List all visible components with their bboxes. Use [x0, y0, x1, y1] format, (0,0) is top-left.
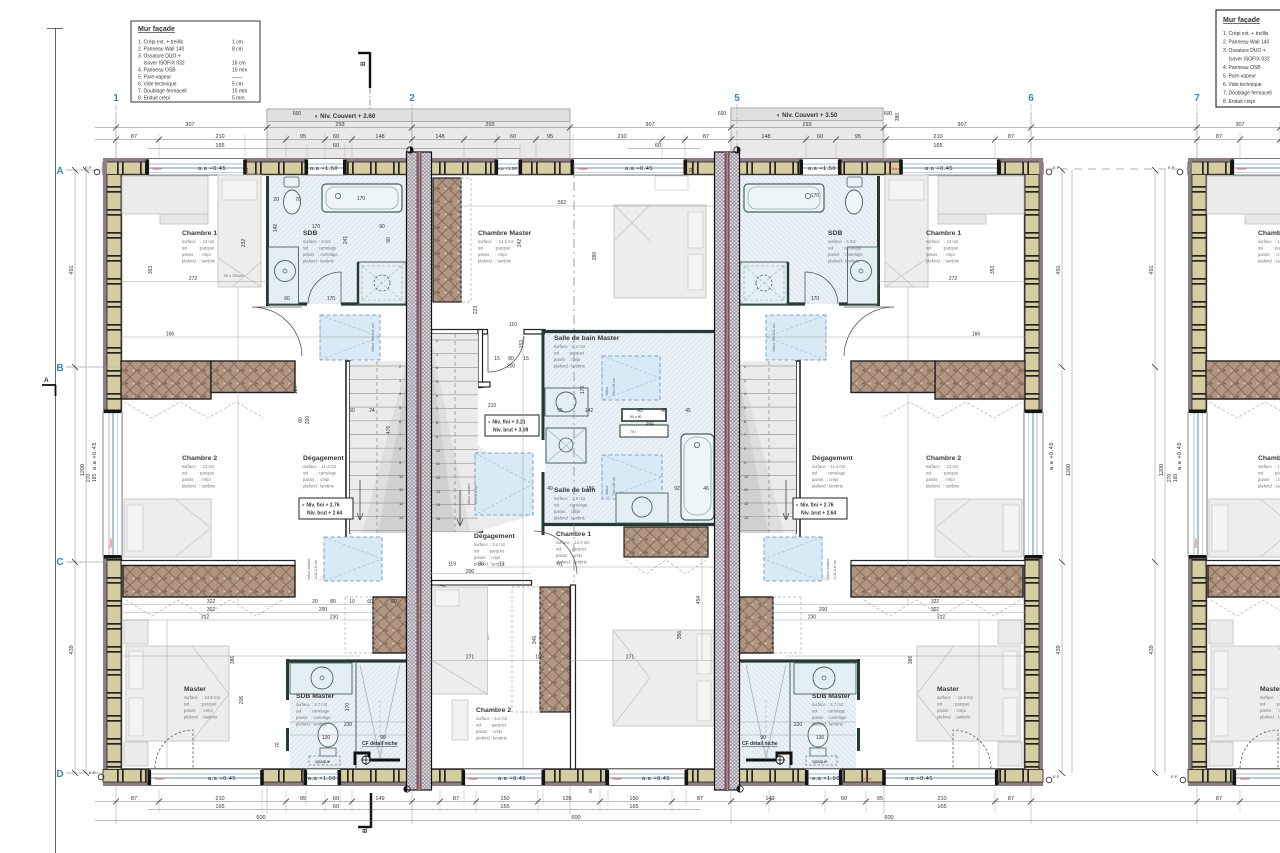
svg-text:454: 454 — [696, 596, 702, 605]
svg-text:130: 130 — [322, 735, 331, 741]
svg-text:220: 220 — [794, 722, 803, 728]
svg-text:a.a +0.45: a.a +0.45 — [1049, 442, 1055, 470]
svg-text:130: 130 — [816, 735, 825, 741]
svg-text:sol : carrelage: sol : carrelage — [812, 471, 846, 476]
svg-text:148: 148 — [435, 134, 444, 140]
svg-text:1 cm: 1 cm — [232, 40, 243, 46]
svg-text:6. Vide technique: 6. Vide technique — [1223, 82, 1262, 88]
svg-text:15 mm: 15 mm — [232, 89, 247, 95]
svg-text:165: 165 — [215, 143, 224, 149]
svg-text:surface : 14.8 m2: surface : 14.8 m2 — [184, 695, 221, 700]
svg-text:Chambre 2: Chambre 2 — [1258, 455, 1280, 462]
svg-text:230: 230 — [330, 615, 339, 621]
svg-text:2: 2 — [436, 339, 438, 343]
svg-text:9: 9 — [744, 461, 746, 465]
svg-text:49: 49 — [547, 486, 553, 492]
svg-text:sol : parquet: sol : parquet — [937, 702, 970, 707]
svg-text:Velux 78x118 cm: Velux 78x118 cm — [371, 323, 375, 352]
svg-text:34: 34 — [588, 788, 593, 794]
svg-text:210: 210 — [933, 134, 942, 140]
svg-text:439: 439 — [1149, 645, 1155, 654]
svg-text:302: 302 — [207, 607, 216, 613]
svg-text:CF détail niche: CF détail niche — [362, 741, 398, 747]
svg-text:476: 476 — [386, 426, 392, 435]
svg-text:165: 165 — [629, 804, 638, 810]
svg-text:150: 150 — [629, 796, 638, 802]
svg-text:95: 95 — [877, 796, 883, 802]
svg-text:sol : carrelage: sol : carrelage — [303, 471, 337, 476]
svg-text:1. Crépi ext. + treillis: 1. Crépi ext. + treillis — [1223, 31, 1269, 37]
svg-text:Salle de bain Master: Salle de bain Master — [554, 335, 620, 342]
svg-text:Dégagement: Dégagement — [812, 455, 854, 462]
svg-text:plafond : lambris: plafond : lambris — [554, 364, 585, 369]
svg-text:142: 142 — [585, 408, 594, 414]
svg-text:386: 386 — [908, 656, 914, 665]
svg-text:surface : 14.8 m2: surface : 14.8 m2 — [937, 695, 974, 700]
svg-text:380: 380 — [895, 113, 901, 122]
svg-text:271: 271 — [626, 655, 635, 661]
svg-text:sol : pa: sol : pa — [1258, 471, 1280, 476]
svg-text:95: 95 — [300, 796, 306, 802]
svg-text:Chambre 2: Chambre 2 — [182, 455, 217, 462]
svg-text:Velux solaire: Velux solaire — [467, 483, 471, 505]
svg-text:20: 20 — [273, 197, 279, 203]
svg-text:5. Pare-vapeur: 5. Pare-vapeur — [138, 75, 171, 81]
svg-text:76: 76 — [275, 742, 281, 748]
svg-text:7: 7 — [436, 407, 438, 411]
svg-text:plafond : la: plafond : la — [1258, 259, 1280, 264]
svg-text:sol : parquet: sol : parquet — [556, 547, 587, 552]
svg-text:60: 60 — [817, 134, 823, 140]
svg-text:parois : crépi: parois : crépi — [926, 252, 955, 257]
svg-text:95: 95 — [547, 134, 553, 140]
svg-text:95: 95 — [855, 134, 861, 140]
svg-text:parois : cr: parois : cr — [1260, 708, 1280, 713]
svg-text:87: 87 — [1008, 134, 1014, 140]
svg-text:a.a +0.45: a.a +0.45 — [498, 776, 526, 782]
svg-text:3. Ossature DUO +: 3. Ossature DUO + — [138, 54, 181, 60]
svg-text:B: B — [360, 61, 367, 66]
svg-text:16 cm: 16 cm — [232, 61, 246, 67]
svg-text:10: 10 — [399, 475, 403, 479]
svg-text:Isover ISOFIX 032: Isover ISOFIX 032 — [138, 61, 185, 67]
svg-text:C: C — [56, 557, 63, 568]
svg-text:2. Panneau Wall 140: 2. Panneau Wall 140 — [138, 47, 184, 53]
svg-text:90 x 200cm: 90 x 200cm — [224, 274, 244, 278]
svg-text:120: 120 — [293, 386, 299, 395]
svg-text:Dégagement: Dégagement — [303, 455, 345, 462]
svg-text:95: 95 — [300, 134, 306, 140]
svg-text:E.P: E.P — [1053, 774, 1060, 779]
svg-text:14: 14 — [436, 503, 440, 507]
svg-text:10: 10 — [535, 655, 541, 661]
svg-text:322: 322 — [207, 599, 216, 605]
svg-text:60: 60 — [510, 134, 516, 140]
svg-text:220: 220 — [344, 722, 353, 728]
svg-text:2: 2 — [744, 365, 746, 369]
svg-text:491: 491 — [1149, 265, 1155, 274]
svg-text:surface : 6 m2: surface : 6 m2 — [828, 239, 856, 244]
svg-text:opaque: opaque — [812, 759, 828, 764]
svg-text:a.a +0.45: a.a +0.45 — [625, 166, 653, 172]
svg-text:149: 149 — [375, 796, 384, 802]
svg-text:Chambre 2: Chambre 2 — [926, 455, 961, 462]
svg-text:5 mm: 5 mm — [232, 96, 245, 102]
svg-text:87: 87 — [1008, 796, 1014, 802]
svg-text:114x118 cm: 114x118 cm — [833, 560, 837, 580]
svg-text:293: 293 — [335, 122, 344, 128]
svg-text:10: 10 — [744, 475, 748, 479]
svg-text:307: 307 — [185, 122, 194, 128]
svg-text:Chambre Master: Chambre Master — [478, 230, 532, 237]
svg-text:60: 60 — [333, 134, 339, 140]
svg-text:114x118 cm: 114x118 cm — [314, 560, 318, 580]
svg-text:230: 230 — [808, 615, 817, 621]
svg-text:166: 166 — [166, 332, 175, 338]
svg-text:90: 90 — [760, 735, 766, 741]
svg-text:surface : 13: surface : 13 — [1258, 464, 1280, 469]
svg-text:sol : carrelage: sol : carrelage — [296, 709, 330, 714]
svg-text:sol : parquet: sol : parquet — [474, 549, 505, 554]
svg-text:6: 6 — [436, 394, 438, 398]
svg-text:272: 272 — [949, 276, 958, 282]
svg-text:Store: Store — [890, 166, 900, 171]
svg-text:surface : 13: surface : 13 — [1258, 239, 1280, 244]
svg-text:170: 170 — [811, 296, 820, 302]
svg-text:200: 200 — [507, 364, 516, 370]
svg-text:Store: Store — [578, 166, 588, 171]
svg-text:Isover ISOFIX 032: Isover ISOFIX 032 — [1223, 57, 1270, 63]
svg-text:1: 1 — [113, 93, 119, 104]
svg-text:parois : crépi: parois : crépi — [474, 555, 500, 560]
svg-text:200: 200 — [466, 569, 475, 575]
svg-text:surface : 3.4 m2: surface : 3.4 m2 — [474, 542, 506, 547]
svg-text:15: 15 — [523, 356, 529, 362]
svg-text:353: 353 — [990, 266, 996, 275]
svg-text:15 mm: 15 mm — [232, 68, 247, 74]
svg-text:sol : parquet: sol : parquet — [926, 471, 959, 476]
svg-text:7: 7 — [744, 433, 746, 437]
svg-text:4. Panneau OSB: 4. Panneau OSB — [138, 68, 176, 74]
svg-text:E.P: E.P — [1171, 774, 1178, 779]
svg-text:92: 92 — [674, 486, 680, 492]
svg-text:surface : 14.3 m2: surface : 14.3 m2 — [478, 239, 515, 244]
svg-text:153: 153 — [519, 340, 525, 349]
svg-text:plafond : lambris: plafond : lambris — [937, 715, 970, 720]
svg-text:302: 302 — [931, 607, 940, 613]
svg-text:parois : crépi: parois : crépi — [937, 708, 966, 713]
svg-text:parois : crépi: parois : crépi — [303, 477, 329, 482]
svg-text:600: 600 — [293, 111, 302, 117]
svg-text:87: 87 — [131, 796, 137, 802]
svg-text:206: 206 — [239, 696, 245, 705]
svg-text:11: 11 — [399, 488, 403, 492]
svg-text:D: D — [56, 769, 63, 780]
svg-text:7: 7 — [1194, 93, 1200, 104]
svg-text:322: 322 — [931, 599, 940, 605]
svg-text:◐ Niv. Couvert + 2.60: ◐ Niv. Couvert + 2.60 — [315, 113, 376, 120]
svg-text:E.P: E.P — [89, 770, 96, 775]
svg-text:sol : parquet: sol : parquet — [182, 246, 215, 251]
svg-text:166: 166 — [972, 332, 981, 338]
svg-text:surface : 13 m2: surface : 13 m2 — [182, 239, 215, 244]
svg-text:plafond : lambris: plafond : lambris — [296, 722, 327, 727]
svg-text:491: 491 — [69, 265, 75, 274]
svg-text:sol : parquet: sol : parquet — [476, 723, 507, 728]
svg-text:3: 3 — [436, 353, 438, 357]
svg-text:6: 6 — [744, 420, 746, 424]
svg-text:55: 55 — [557, 408, 563, 414]
svg-text:600: 600 — [718, 111, 727, 117]
svg-text:60: 60 — [333, 804, 339, 810]
svg-text:60: 60 — [284, 296, 290, 302]
svg-text:346: 346 — [532, 636, 538, 645]
svg-text:a.a +0.45: a.a +0.45 — [925, 166, 953, 172]
svg-text:surface : 6 m2: surface : 6 m2 — [303, 239, 331, 244]
svg-text:a.a +0.45: a.a +0.45 — [92, 442, 98, 470]
svg-text:34: 34 — [244, 167, 249, 173]
svg-text:210: 210 — [215, 134, 224, 140]
svg-text:332: 332 — [646, 421, 655, 427]
svg-text:1200: 1200 — [1159, 464, 1165, 476]
svg-text:61: 61 — [557, 562, 563, 568]
svg-text:12: 12 — [399, 502, 403, 506]
svg-text:Chambre 1: Chambre 1 — [926, 230, 961, 237]
svg-text:parois : carrelage: parois : carrelage — [296, 715, 331, 720]
svg-text:114x118 cm: 114x118 cm — [474, 485, 478, 505]
svg-text:Master: Master — [1260, 686, 1280, 693]
svg-text:34: 34 — [688, 167, 693, 173]
svg-text:10: 10 — [436, 449, 440, 453]
svg-text:60: 60 — [367, 599, 373, 605]
svg-text:Velux: Velux — [605, 486, 609, 495]
svg-text:4. Panneau OSB: 4. Panneau OSB — [1223, 65, 1261, 71]
svg-text:12: 12 — [744, 502, 748, 506]
svg-text:170: 170 — [357, 196, 366, 202]
svg-text:8: 8 — [744, 447, 746, 451]
svg-text:sol : carrelage: sol : carrelage — [554, 503, 588, 508]
svg-text:90: 90 — [386, 237, 392, 243]
svg-text:200: 200 — [319, 607, 328, 613]
svg-text:plafond : lambris: plafond : lambris — [554, 516, 585, 521]
svg-text:87: 87 — [1216, 796, 1222, 802]
svg-text:sol : parquet: sol : parquet — [926, 246, 959, 251]
svg-text:Mur façade: Mur façade — [138, 26, 175, 33]
svg-text:——: —— — [232, 75, 242, 81]
svg-text:165: 165 — [215, 804, 224, 810]
svg-text:126: 126 — [562, 796, 571, 802]
svg-text:sol : carrelage: sol : carrelage — [828, 246, 862, 251]
svg-text:Store: Store — [468, 776, 478, 781]
svg-text:Master: Master — [184, 686, 206, 693]
svg-text:◐ Niv. fini + 3.21: ◐ Niv. fini + 3.21 — [488, 420, 526, 426]
svg-text:opaque: opaque — [315, 759, 331, 764]
svg-text:Store: Store — [155, 776, 165, 781]
svg-text:Velux: Velux — [605, 387, 609, 396]
svg-text:surface : 9.2 m2: surface : 9.2 m2 — [476, 716, 508, 721]
svg-text:165: 165 — [933, 143, 942, 149]
svg-text:307: 307 — [1235, 122, 1244, 128]
svg-text:◐ Niv. fini + 2.76: ◐ Niv. fini + 2.76 — [302, 503, 340, 509]
svg-text:a.a +1.50: a.a +1.50 — [812, 776, 840, 782]
svg-text:50: 50 — [349, 408, 355, 414]
svg-text:surface : 11.4 m2: surface : 11.4 m2 — [303, 464, 337, 469]
svg-text:293: 293 — [802, 122, 811, 128]
svg-text:12: 12 — [436, 476, 440, 480]
svg-text:78x118 cm: 78x118 cm — [612, 477, 616, 495]
svg-text:45: 45 — [685, 408, 691, 414]
svg-text:223: 223 — [473, 306, 479, 315]
svg-text:a.a +1.50: a.a +1.50 — [808, 166, 836, 172]
svg-text:a.a +1.50: a.a +1.50 — [497, 166, 517, 172]
svg-text:87: 87 — [1216, 134, 1222, 140]
svg-text:Mur façade: Mur façade — [1223, 17, 1260, 24]
svg-text:87: 87 — [697, 796, 703, 802]
svg-text:plafond : lambris: plafond : lambris — [184, 715, 217, 720]
svg-text:surface : 12.9 m2: surface : 12.9 m2 — [556, 540, 590, 545]
svg-text:plafond : lambris: plafond : lambris — [303, 484, 334, 489]
svg-text:491: 491 — [1056, 265, 1062, 274]
svg-text:75 l: 75 l — [630, 430, 636, 434]
svg-text:parois : crépi: parois : crépi — [478, 252, 507, 257]
svg-text:parois : crépi: parois : crépi — [182, 477, 211, 482]
svg-text:15: 15 — [436, 517, 440, 521]
svg-text:11: 11 — [436, 462, 440, 466]
svg-text:8 cm: 8 cm — [232, 47, 243, 53]
svg-text:A: A — [56, 166, 63, 177]
svg-text:E.P: E.P — [85, 165, 92, 170]
svg-text:80: 80 — [298, 417, 304, 423]
svg-text:surface : 5.4 m2: surface : 5.4 m2 — [554, 344, 586, 349]
svg-text:165: 165 — [92, 474, 98, 483]
svg-text:148: 148 — [375, 134, 384, 140]
svg-text:sol : parquet: sol : parquet — [478, 246, 511, 251]
svg-text:552: 552 — [558, 200, 567, 206]
svg-text:a.a +1.50: a.a +1.50 — [310, 166, 338, 172]
svg-text:6: 6 — [1028, 93, 1034, 104]
svg-text:200: 200 — [305, 416, 311, 425]
svg-text:7: 7 — [399, 433, 401, 437]
svg-text:plafond : lambris: plafond : lambris — [303, 259, 334, 264]
svg-text:3: 3 — [744, 379, 746, 383]
svg-text:8. Enduit crépi: 8. Enduit crépi — [138, 96, 170, 102]
svg-text:353: 353 — [148, 266, 154, 275]
svg-text:1200: 1200 — [1066, 464, 1072, 476]
svg-text:142: 142 — [273, 224, 279, 233]
svg-text:20: 20 — [312, 599, 318, 605]
svg-text:parois : crépi: parois : crépi — [926, 477, 955, 482]
svg-text:356: 356 — [677, 631, 683, 640]
svg-text:15: 15 — [494, 356, 500, 362]
svg-text:parois : cr: parois : cr — [1258, 477, 1280, 482]
svg-text:7. Doublage fermacell: 7. Doublage fermacell — [138, 89, 187, 95]
svg-text:80: 80 — [508, 356, 514, 362]
svg-text:a.a +1.50: a.a +1.50 — [308, 776, 336, 782]
svg-text:5: 5 — [744, 406, 746, 410]
svg-text:B: B — [362, 828, 369, 833]
svg-text:13: 13 — [436, 490, 440, 494]
svg-text:46: 46 — [703, 486, 709, 492]
svg-text:parois : crépi: parois : crépi — [554, 509, 580, 514]
svg-text:a.a +0.45: a.a +0.45 — [642, 776, 670, 782]
svg-text:sol : parquet: sol : parquet — [182, 471, 215, 476]
svg-text:parois : carrelage: parois : carrelage — [812, 715, 847, 720]
svg-text:78x118 cm: 78x118 cm — [612, 378, 616, 396]
svg-text:5: 5 — [399, 406, 401, 410]
svg-text:plafond : lambris: plafond : lambris — [476, 736, 507, 741]
svg-text:45: 45 — [661, 408, 667, 414]
svg-text:parois : crépi: parois : crépi — [476, 729, 502, 734]
svg-text:242: 242 — [517, 239, 523, 248]
svg-text:surface : 13 m2: surface : 13 m2 — [926, 239, 959, 244]
svg-text:600: 600 — [256, 815, 265, 821]
svg-text:600: 600 — [571, 815, 580, 821]
svg-text:SDB: SDB — [303, 230, 317, 237]
svg-text:plafond : lambris: plafond : lambris — [926, 259, 959, 264]
svg-text:a.a +0.45: a.a +0.45 — [198, 166, 226, 172]
svg-text:386: 386 — [230, 656, 236, 665]
svg-text:Chambre 2: Chambre 2 — [476, 707, 511, 714]
svg-text:a.a +0.45: a.a +0.45 — [905, 776, 933, 782]
svg-text:170: 170 — [345, 703, 351, 712]
svg-text:3: 3 — [399, 379, 401, 383]
svg-text:Master: Master — [937, 686, 959, 693]
svg-text:165: 165 — [1173, 474, 1179, 483]
svg-text:13: 13 — [399, 516, 403, 520]
svg-text:312: 312 — [937, 615, 946, 621]
svg-text:4: 4 — [399, 392, 401, 396]
svg-text:87: 87 — [453, 796, 459, 802]
svg-text:2. Panneau Wall 140: 2. Panneau Wall 140 — [1223, 40, 1269, 46]
svg-text:60: 60 — [391, 599, 397, 605]
svg-text:parois : carrelage: parois : carrelage — [303, 252, 338, 257]
svg-text:5. Pare-vapeur: 5. Pare-vapeur — [1223, 74, 1256, 80]
svg-text:60: 60 — [333, 796, 339, 802]
svg-text:CF détail niche: CF détail niche — [742, 741, 778, 747]
svg-text:8: 8 — [436, 421, 438, 425]
svg-text:90: 90 — [379, 224, 385, 230]
svg-text:6: 6 — [399, 420, 401, 424]
svg-text:150: 150 — [500, 796, 509, 802]
svg-text:SDB Master: SDB Master — [296, 693, 335, 700]
svg-text:80: 80 — [478, 562, 484, 568]
svg-text:165: 165 — [937, 804, 946, 810]
svg-text:87: 87 — [703, 134, 709, 140]
svg-text:149: 149 — [765, 796, 774, 802]
svg-text:parois : carrelage: parois : carrelage — [828, 252, 863, 257]
svg-text:sol : pa: sol : pa — [1260, 702, 1280, 707]
svg-text:1. Crépi ext. + treillis: 1. Crépi ext. + treillis — [138, 40, 184, 46]
svg-text:11: 11 — [499, 562, 504, 568]
svg-text:sol : pa: sol : pa — [1258, 246, 1280, 251]
svg-text:sol : parquet: sol : parquet — [554, 351, 585, 356]
svg-text:A: A — [44, 377, 49, 384]
svg-text:sol : parquet: sol : parquet — [184, 702, 217, 707]
svg-text:60: 60 — [841, 796, 847, 802]
svg-text:Velux solaire: Velux solaire — [826, 558, 830, 580]
svg-text:Store: Store — [612, 776, 622, 781]
svg-text:parois : crépi: parois : crépi — [182, 252, 211, 257]
svg-text:271: 271 — [466, 655, 475, 661]
svg-text:170: 170 — [312, 224, 321, 230]
svg-text:Store: Store — [862, 776, 872, 781]
svg-text:Chambre 1: Chambre 1 — [182, 230, 217, 237]
svg-text:parois : crépi: parois : crépi — [812, 477, 838, 482]
svg-text:90: 90 — [380, 735, 386, 741]
svg-text:4: 4 — [436, 366, 438, 370]
svg-text:◐ Niv. Couvert + 3.50: ◐ Niv. Couvert + 3.50 — [777, 112, 838, 119]
svg-text:parois : cr: parois : cr — [1258, 252, 1280, 257]
